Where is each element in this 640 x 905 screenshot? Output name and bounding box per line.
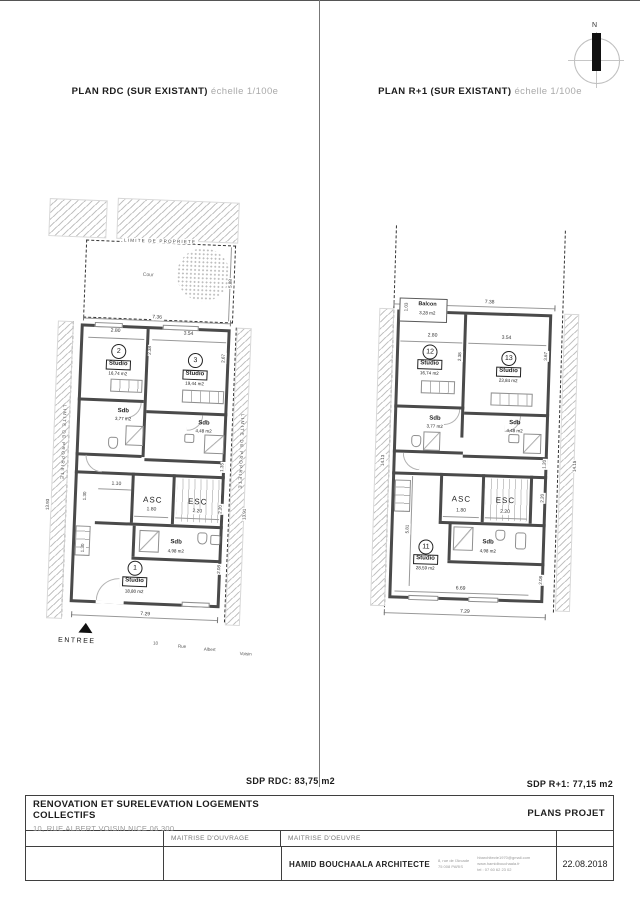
empty-cell bbox=[557, 831, 613, 846]
sdb2-label: Sdb bbox=[118, 408, 130, 414]
dim-top-width: 7.38 bbox=[484, 300, 496, 305]
dim-inner-bottom: 6.69 bbox=[455, 586, 467, 591]
empty-cell bbox=[26, 831, 164, 846]
r1-title: PLAN R+1 (SUR EXISTANT) échelle 1/100e bbox=[330, 86, 630, 97]
kitchenette bbox=[490, 392, 532, 406]
shower bbox=[523, 433, 542, 454]
dim-left-a: 5.81 bbox=[405, 524, 410, 535]
entrance-marker bbox=[78, 623, 92, 634]
title-block-row-headers: MAITRISE D'OUVRAGE MAITRISE D'OEUVRE bbox=[26, 831, 613, 847]
dim-side-right: 13.91 bbox=[242, 508, 247, 521]
architect-address-line2: 75 008 PARIS bbox=[438, 864, 463, 869]
dim-tick bbox=[230, 320, 231, 326]
title-block: RENOVATION ET SURELEVATION LOGEMENTS COL… bbox=[25, 795, 614, 881]
cour-label: Cour bbox=[143, 272, 154, 278]
r1-title-main: PLAN R+1 (SUR EXISTANT) bbox=[378, 86, 511, 97]
rdc-title-scale: échelle 1/100e bbox=[211, 86, 278, 97]
north-label: N bbox=[592, 22, 597, 29]
shower bbox=[125, 425, 144, 446]
toilet bbox=[411, 435, 421, 447]
sink bbox=[508, 434, 519, 443]
dim-side-right: 14.15 bbox=[573, 460, 578, 473]
plan-r1: 14.13 14.15 7.38 Balcon 3,28 m2 1.03 2.8… bbox=[366, 223, 590, 669]
sink bbox=[184, 434, 194, 443]
balcon-label: Balcon bbox=[418, 302, 437, 308]
dim-esc: 2.20 bbox=[191, 509, 203, 514]
dim-room13-height: 3.67 bbox=[544, 351, 549, 362]
sdb12-label: Sdb bbox=[429, 416, 441, 422]
hatch-band-left bbox=[48, 198, 107, 238]
kitchenette bbox=[421, 380, 455, 394]
dim-room3-width: 3.54 bbox=[183, 332, 195, 337]
dim-right-a: 1.35 bbox=[220, 462, 225, 473]
maitrise-oeuvre-label: MAITRISE D'OEUVRE bbox=[281, 831, 557, 846]
dim-left-b: 1.30 bbox=[81, 542, 86, 553]
entree-label: ENTREE bbox=[58, 637, 96, 645]
title-block-row-architect: HAMID BOUCHAALA ARCHITECTE 8, rue de l'A… bbox=[26, 847, 613, 881]
room12-type: Studio bbox=[417, 359, 442, 370]
sdb13-label: Sdb bbox=[509, 420, 521, 426]
rdc-title: PLAN RDC (SUR EXISTANT) échelle 1/100e bbox=[25, 86, 325, 97]
dim-tick bbox=[545, 614, 546, 620]
room2-area: 16,74 m2 bbox=[108, 372, 127, 377]
architect-phone: tel : 07 60 62 23 02 bbox=[477, 867, 511, 872]
dim-room13-width: 3.54 bbox=[501, 336, 513, 341]
architect-cell: HAMID BOUCHAALA ARCHITECTE 8, rue de l'A… bbox=[282, 847, 557, 881]
sheet-center-divider bbox=[319, 0, 320, 787]
maitrise-ouvrage-label: MAITRISE D'OUVRAGE bbox=[164, 831, 281, 846]
toilet bbox=[108, 437, 118, 449]
hatch-band-right bbox=[116, 198, 240, 244]
dim-tick bbox=[384, 609, 385, 615]
shower bbox=[453, 526, 474, 551]
window bbox=[182, 602, 210, 608]
toilet bbox=[197, 532, 207, 544]
room1-area: 18,80 m2 bbox=[125, 589, 144, 594]
shower bbox=[139, 530, 160, 553]
dim-asc: 1.80 bbox=[145, 507, 157, 512]
street-word-voisin: Voisin bbox=[240, 651, 252, 656]
dim-right-c: 2.08 bbox=[539, 575, 544, 586]
sdp-rdc-label: SDP RDC: 83,75 m2 bbox=[25, 776, 335, 786]
dim-bottom: 7.29 bbox=[139, 612, 151, 617]
north-needle bbox=[592, 33, 601, 71]
dim-cour-width: 7.36 bbox=[151, 315, 163, 320]
street-word-albert: Albert bbox=[204, 647, 216, 652]
street-number: 10 bbox=[153, 641, 158, 646]
empty-cell bbox=[26, 847, 164, 881]
sdb1-label: Sdb bbox=[170, 539, 182, 545]
architect-address-line1: 8, rue de l'Arcade bbox=[438, 858, 469, 863]
sdp-r1-label: SDP R+1: 77,15 m2 bbox=[305, 779, 613, 789]
room11-type: Studio bbox=[413, 554, 438, 565]
room3-type: Studio bbox=[182, 370, 207, 381]
dim-tick bbox=[83, 314, 84, 320]
room2-type: Studio bbox=[106, 359, 131, 370]
dim-room12-width: 2.80 bbox=[427, 333, 439, 338]
sdb2-area: 3,77 m2 bbox=[115, 417, 131, 422]
project-title: RENOVATION ET SURELEVATION LOGEMENTS COL… bbox=[33, 799, 316, 821]
sink bbox=[210, 535, 220, 545]
rdc-title-main: PLAN RDC (SUR EXISTANT) bbox=[72, 86, 208, 97]
room11-area: 28,59 m2 bbox=[416, 566, 435, 571]
dim-balcon-height: 1.03 bbox=[404, 302, 409, 313]
dim-right-a: 1.20 bbox=[543, 459, 548, 470]
street-word-rue: Rue bbox=[178, 644, 186, 649]
room13-area: 23,84 m2 bbox=[499, 379, 518, 384]
dim-side-left: 14.13 bbox=[381, 454, 386, 467]
esc-label: ESC bbox=[496, 497, 516, 506]
room13-type: Studio bbox=[496, 367, 521, 378]
asc-label: ASC bbox=[452, 495, 472, 504]
dim-right-c: 2.08 bbox=[217, 564, 222, 575]
title-block-row-project: RENOVATION ET SURELEVATION LOGEMENTS COL… bbox=[26, 796, 613, 831]
sdb12-area: 3,77 m2 bbox=[426, 424, 442, 429]
dim-tick bbox=[71, 611, 72, 617]
shower bbox=[204, 434, 225, 454]
dim-left-a: 1.30 bbox=[83, 491, 88, 502]
dim-tick bbox=[393, 300, 394, 306]
dim-bottom: 7.29 bbox=[459, 610, 471, 615]
drawing-sheet: N PLAN RDC (SUR EXISTANT) échelle 1/100e… bbox=[0, 0, 640, 905]
bathtub bbox=[515, 532, 527, 549]
north-arrow: N bbox=[568, 22, 624, 86]
dim-esc: 2.20 bbox=[499, 510, 511, 515]
toilet bbox=[495, 530, 505, 541]
kitchenette bbox=[182, 390, 224, 405]
sheet-top-border bbox=[0, 0, 640, 1]
window bbox=[408, 595, 438, 601]
dim-room2-width: 2.80 bbox=[110, 329, 122, 334]
dim-divider-height: 2.38 bbox=[458, 351, 463, 362]
room12-area: 16,74 m2 bbox=[420, 371, 439, 376]
dim-right-b: 2.20 bbox=[540, 493, 545, 504]
sdb3-label: Sdb bbox=[198, 420, 210, 426]
r1-title-scale: échelle 1/100e bbox=[514, 86, 581, 97]
sdb11-label: Sdb bbox=[482, 539, 494, 545]
empty-cell bbox=[164, 847, 282, 881]
architect-email: hbarchitecte1970@gmail.com bbox=[477, 855, 530, 860]
dim-hall: 1.10 bbox=[110, 482, 122, 487]
dim-cour-height: 5.88 bbox=[228, 278, 233, 289]
dim-divider-height: 2.38 bbox=[148, 345, 153, 356]
kitchenette bbox=[394, 479, 411, 511]
dim-room3-height: 2.67 bbox=[221, 353, 226, 364]
dim-right-b: 2.20 bbox=[218, 504, 223, 515]
shower bbox=[423, 431, 441, 451]
architect-website: www.hamidbouchaala.fr bbox=[477, 861, 519, 866]
plan-rdc: LIMITE DE PROPRIETE Cour 5.88 7.36 LIMIT… bbox=[29, 192, 258, 670]
document-name: PLANS PROJET bbox=[323, 796, 614, 830]
date-cell: 22.08.2018 bbox=[557, 847, 613, 881]
kitchenette bbox=[110, 379, 142, 393]
dim-tick bbox=[217, 617, 218, 623]
esc-label: ESC bbox=[188, 498, 208, 507]
sdb11-area: 4,98 m2 bbox=[480, 549, 496, 554]
sdb1-area: 4,98 m2 bbox=[168, 549, 184, 554]
project-cell: RENOVATION ET SURELEVATION LOGEMENTS COL… bbox=[26, 796, 323, 830]
room3-area: 19,44 m2 bbox=[185, 382, 204, 387]
architect-address: 8, rue de l'Arcade 75 008 PARIS bbox=[438, 858, 469, 870]
balcon-area: 3,28 m2 bbox=[419, 311, 435, 316]
dim-side-left: 13.93 bbox=[46, 498, 51, 511]
asc-label: ASC bbox=[143, 496, 163, 505]
window bbox=[468, 597, 498, 603]
dim-tick bbox=[554, 305, 555, 311]
architect-name: HAMID BOUCHAALA ARCHITECTE bbox=[289, 860, 430, 869]
room1-type: Studio bbox=[122, 576, 147, 587]
architect-contact: hbarchitecte1970@gmail.com www.hamidbouc… bbox=[477, 855, 530, 873]
dim-asc: 1.80 bbox=[455, 508, 467, 513]
